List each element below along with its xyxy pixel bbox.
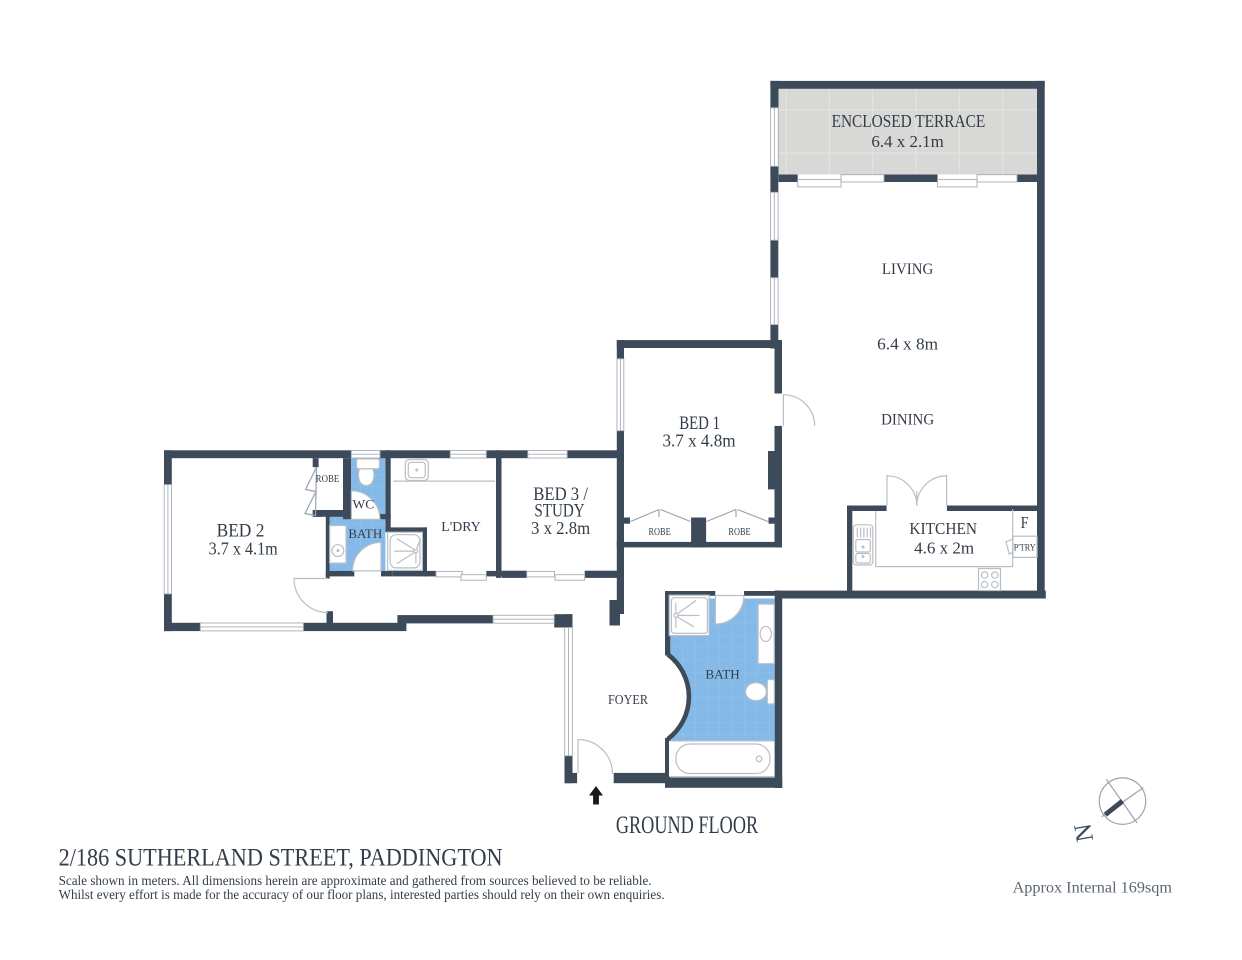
svg-text:6.4 x 2.1m: 6.4 x 2.1m xyxy=(871,132,944,151)
svg-text:GROUND FLOOR: GROUND FLOOR xyxy=(616,810,758,839)
svg-text:ROBE: ROBE xyxy=(728,526,750,538)
svg-text:BATH: BATH xyxy=(705,667,739,682)
svg-text:KITCHEN: KITCHEN xyxy=(909,519,977,538)
svg-text:3.7 x 4.8m: 3.7 x 4.8m xyxy=(662,430,735,450)
svg-text:DINING: DINING xyxy=(881,411,934,428)
svg-text:ENCLOSED TERRACE: ENCLOSED TERRACE xyxy=(832,111,986,131)
svg-text:F: F xyxy=(1021,513,1029,532)
svg-text:4.6 x 2m: 4.6 x 2m xyxy=(914,539,974,558)
svg-text:LIVING: LIVING xyxy=(882,261,934,278)
svg-text:L'DRY: L'DRY xyxy=(441,520,480,535)
svg-text:Approx Internal 169sqm: Approx Internal 169sqm xyxy=(1013,880,1172,897)
svg-text:Scale shown in meters. All dim: Scale shown in meters. All dimensions he… xyxy=(59,873,652,888)
svg-text:P'TRY: P'TRY xyxy=(1014,543,1036,553)
svg-text:3 x 2.8m: 3 x 2.8m xyxy=(531,518,590,538)
svg-text:WC: WC xyxy=(353,497,375,511)
svg-text:6.4 x 8m: 6.4 x 8m xyxy=(877,335,938,354)
svg-text:3.7 x 4.1m: 3.7 x 4.1m xyxy=(209,538,278,558)
svg-text:BATH: BATH xyxy=(348,526,382,541)
svg-text:2/186 SUTHERLAND STREET, PADDI: 2/186 SUTHERLAND STREET, PADDINGTON xyxy=(59,845,503,872)
svg-text:Whilst every effort is made fo: Whilst every effort is made for the accu… xyxy=(59,887,665,902)
svg-text:ROBE: ROBE xyxy=(649,526,671,538)
svg-text:FOYER: FOYER xyxy=(608,692,648,707)
svg-text:ROBE: ROBE xyxy=(316,473,340,485)
